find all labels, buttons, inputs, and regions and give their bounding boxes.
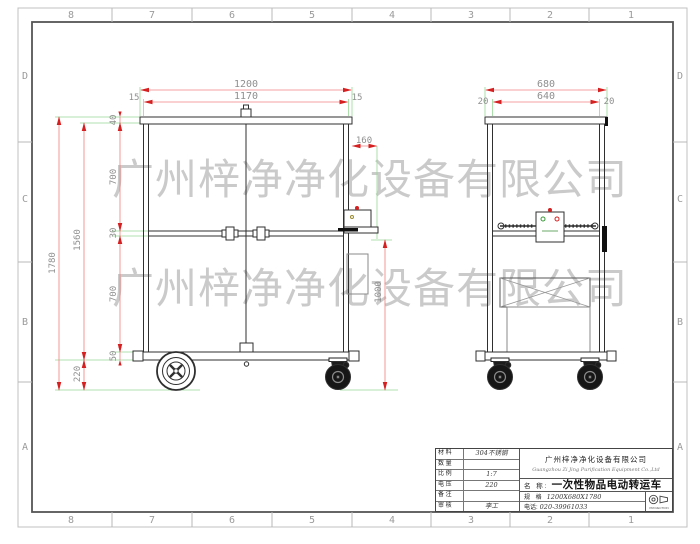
dim-side-edge-right: 20 — [604, 97, 615, 107]
field-label: 备 注 — [436, 491, 464, 501]
field-row-quantity: 数 量 — [436, 459, 519, 470]
grid-label: 1 — [628, 515, 634, 526]
dim-front-box-offset: 160 — [356, 136, 372, 146]
dim-side-inner-width: 640 — [537, 91, 555, 102]
dim-front-base: 50 — [109, 351, 119, 362]
grid-label: D — [22, 71, 28, 82]
grid-label: 6 — [229, 10, 235, 21]
front-left-wheel — [157, 352, 195, 390]
grid-label: B — [22, 317, 28, 328]
grid-label: 1 — [628, 10, 634, 21]
field-value: 220 — [464, 481, 519, 491]
title-block-fields: 材 料 304不锈钢 数 量 比 例 1:7 电 压 220 备 注 审 核 李… — [436, 449, 520, 511]
product-name-value: 一次性物品电动转运车 — [552, 478, 662, 491]
title-block: 材 料 304不锈钢 数 量 比 例 1:7 电 压 220 备 注 审 核 李… — [435, 448, 673, 512]
side-right-caster — [578, 358, 603, 390]
grid-label: 4 — [389, 515, 395, 526]
grid-label: C — [677, 194, 683, 205]
field-row-review: 审 核 李工 — [436, 501, 519, 512]
company-name-cn: 广州梓净净化设备有限公司 — [545, 454, 647, 465]
grid-label: 6 — [229, 515, 235, 526]
company-name-en: Guangzhou Zi Jing Purification Equipment… — [532, 467, 660, 473]
front-right-caster — [326, 358, 351, 390]
grid-label: A — [677, 442, 683, 453]
field-label: 审 核 — [436, 502, 464, 512]
front-top-plate — [140, 117, 352, 124]
grid-label: 7 — [149, 10, 155, 21]
grid-label: 2 — [547, 515, 553, 526]
field-row-voltage: 电 压 220 — [436, 480, 519, 491]
extension-lines — [55, 87, 607, 390]
field-value: 1:7 — [464, 470, 519, 480]
side-left-caster — [488, 358, 513, 390]
grid-col-labels-bottom: 8 7 6 5 4 3 2 1 — [68, 515, 634, 526]
field-label: 材 料 — [436, 449, 464, 459]
dim-front-top: 40 — [109, 115, 119, 126]
watermark-line-1: 广州梓净净化设备有限公司 — [112, 155, 628, 204]
grid-label: B — [677, 317, 683, 328]
dim-front-overall-width: 1200 — [234, 79, 258, 90]
grid-label: 5 — [309, 515, 315, 526]
field-label: 数 量 — [436, 460, 464, 470]
grid-label: 7 — [149, 515, 155, 526]
product-name-row: 名 称: 一次性物品电动转运车 — [520, 478, 672, 491]
dim-front-edge-right: 15 — [352, 93, 363, 103]
grid-label: A — [22, 442, 28, 453]
field-row-material: 材 料 304不锈钢 — [436, 449, 519, 459]
drawing-sheet: 8 7 6 5 4 3 2 1 8 7 6 5 4 3 2 1 D C B A … — [0, 0, 700, 544]
spec-phone-col: 规 格 1200X680X1780 电话: 020-39961033 — [520, 492, 645, 511]
phone-value: 020-39961033 — [540, 503, 588, 511]
dim-front-inner-width: 1170 — [234, 91, 258, 102]
front-control-box — [338, 206, 378, 233]
side-handle — [602, 226, 607, 252]
spec-row: 规 格 1200X680X1780 — [520, 492, 645, 501]
title-block-main: 广州梓净净化设备有限公司 Guangzhou Zi Jing Purificat… — [520, 449, 672, 511]
grid-label: 4 — [389, 10, 395, 21]
field-label: 比 例 — [436, 470, 464, 480]
field-row-scale: 比 例 1:7 — [436, 469, 519, 480]
field-value: 李工 — [464, 502, 519, 512]
projection-cell: PROJECTION — [645, 492, 672, 511]
watermark-line-2: 广州梓净净化设备有限公司 — [112, 264, 628, 313]
field-value — [464, 460, 519, 470]
spec-value: 1200X680X1780 — [547, 493, 602, 501]
projection-label: PROJECTION — [649, 506, 668, 510]
field-value — [464, 491, 519, 501]
grid-label: 2 — [547, 10, 553, 21]
dim-front-mid: 30 — [109, 228, 119, 239]
grid-label: 3 — [468, 515, 474, 526]
phone-label: 电话: — [520, 502, 540, 511]
grid-label: 3 — [468, 10, 474, 21]
grid-col-labels-top: 8 7 6 5 4 3 2 1 — [68, 10, 634, 21]
phone-row: 电话: 020-39961033 — [520, 501, 645, 511]
dim-front-wheel-height: 220 — [73, 366, 83, 382]
dimensions-side: 680 640 20 20 — [478, 79, 615, 107]
front-center-bracket — [240, 343, 253, 352]
side-top-plate — [485, 117, 607, 124]
grid-label: 8 — [68, 515, 74, 526]
spec-phone-block: 规 格 1200X680X1780 电话: 020-39961033 PROJE… — [520, 491, 672, 511]
front-view — [133, 105, 378, 390]
dimensions-front: 1200 1170 15 15 40 700 30 700 50 1560 17… — [48, 79, 385, 390]
dim-front-edge-left: 15 — [129, 93, 140, 103]
field-row-remark: 备 注 — [436, 490, 519, 501]
dim-side-overall-width: 680 — [537, 79, 555, 90]
dim-front-overall-height: 1780 — [48, 252, 58, 274]
dim-front-lower: 700 — [109, 286, 119, 302]
field-value: 304不锈钢 — [464, 449, 519, 459]
grid-label: D — [677, 71, 683, 82]
grid-label: 5 — [309, 10, 315, 21]
dim-side-edge-left: 20 — [478, 97, 489, 107]
product-name-label: 名 称: — [520, 480, 552, 490]
projection-symbol-icon — [647, 494, 671, 505]
dim-front-box-height: 1000 — [374, 281, 384, 303]
grid-label: 8 — [68, 10, 74, 21]
field-label: 电 压 — [436, 481, 464, 491]
dim-front-frame-height: 1560 — [73, 229, 83, 251]
dim-front-upper: 700 — [109, 169, 119, 185]
company-block: 广州梓净净化设备有限公司 Guangzhou Zi Jing Purificat… — [520, 449, 672, 478]
side-control-box — [536, 208, 564, 242]
front-top-knob-cap — [244, 105, 249, 109]
spec-label: 规 格 — [520, 492, 547, 501]
front-top-knob — [241, 109, 251, 117]
grid-label: C — [22, 194, 28, 205]
